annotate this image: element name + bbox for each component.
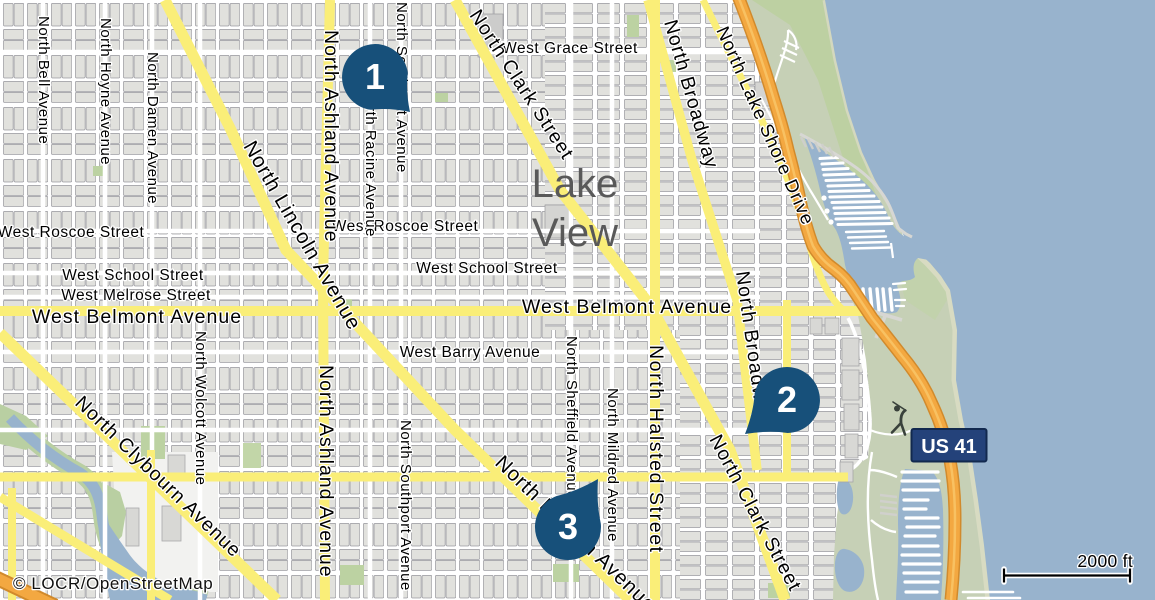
- svg-text:North Bell Avenue: North Bell Avenue: [35, 16, 52, 144]
- svg-text:North Hoyne Avenue: North Hoyne Avenue: [97, 18, 114, 165]
- svg-text:West Roscoe Street: West Roscoe Street: [332, 218, 479, 235]
- svg-text:3: 3: [558, 506, 578, 547]
- svg-text:North Sheffield Avenue: North Sheffield Avenue: [563, 336, 580, 500]
- svg-text:North Southport Avenue: North Southport Avenue: [397, 420, 414, 591]
- svg-text:North Ashland Avenue: North Ashland Avenue: [315, 365, 337, 578]
- svg-text:View: View: [532, 211, 618, 255]
- svg-text:West School Street: West School Street: [416, 260, 558, 277]
- svg-text:West Roscoe Street: West Roscoe Street: [0, 224, 144, 241]
- svg-text:Lake: Lake: [532, 162, 619, 206]
- svg-text:West Barry Avenue: West Barry Avenue: [400, 344, 541, 361]
- svg-text:North Ashland Avenue: North Ashland Avenue: [320, 30, 342, 243]
- svg-text:2: 2: [777, 379, 797, 420]
- svg-text:North Damen Avenue: North Damen Avenue: [144, 52, 161, 204]
- svg-text:US 41: US 41: [921, 436, 977, 458]
- svg-text:North Mildred Avenue: North Mildred Avenue: [604, 388, 621, 542]
- svg-text:West Grace Street: West Grace Street: [502, 40, 638, 57]
- svg-text:West Melrose Street: West Melrose Street: [61, 287, 211, 304]
- svg-text:1: 1: [365, 56, 385, 97]
- svg-text:© LOCR/OpenStreetMap: © LOCR/OpenStreetMap: [13, 574, 213, 593]
- svg-text:2000 ft: 2000 ft: [1077, 551, 1133, 571]
- svg-text:West Belmont Avenue: West Belmont Avenue: [522, 296, 732, 318]
- svg-text:West Belmont Avenue: West Belmont Avenue: [32, 306, 242, 328]
- svg-text:West School Street: West School Street: [62, 267, 204, 284]
- svg-text:North Wolcott Avenue: North Wolcott Avenue: [192, 331, 209, 486]
- svg-text:North Halsted Street: North Halsted Street: [645, 345, 667, 554]
